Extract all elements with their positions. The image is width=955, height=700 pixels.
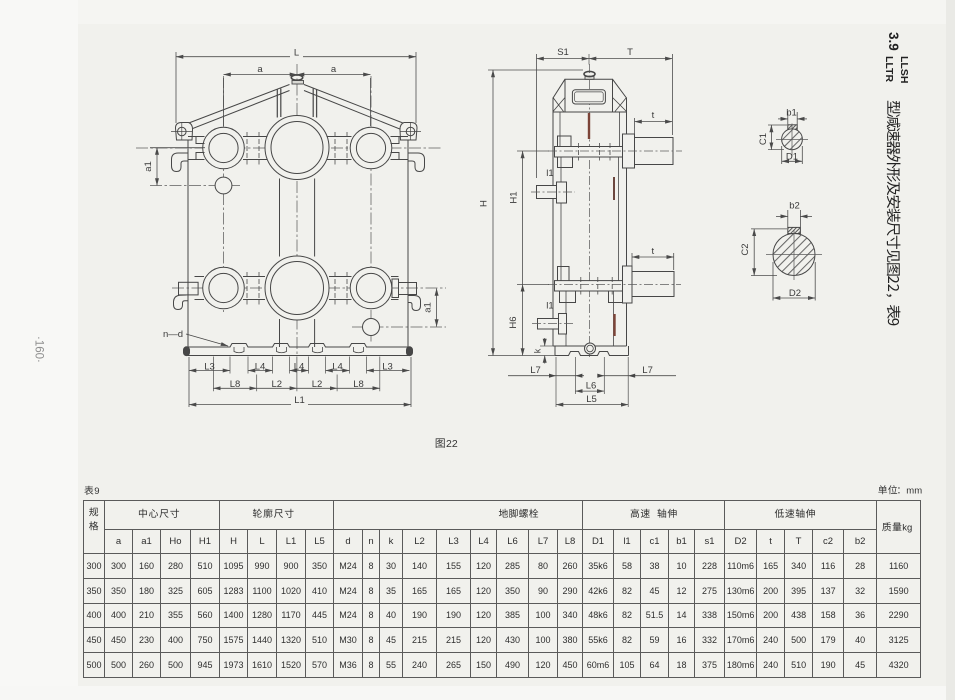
svg-text:3.9: 3.9 [886,32,901,51]
svg-text:L5: L5 [586,394,597,405]
svg-text:t: t [652,110,655,121]
svg-text:H6: H6 [508,316,519,328]
svg-text:L2: L2 [272,379,283,390]
svg-text:l1: l1 [546,168,553,179]
svg-text:T: T [627,47,633,58]
svg-text:mm: mm [906,486,922,497]
svg-text:a: a [331,64,337,75]
svg-text:S1: S1 [557,47,569,58]
svg-text:22: 22 [446,438,458,450]
svg-text:L7: L7 [530,365,541,376]
svg-text:k: k [533,348,543,353]
svg-text:l1: l1 [546,301,553,312]
svg-text:L1: L1 [294,395,305,406]
svg-text:L4: L4 [294,362,305,373]
svg-text:L: L [294,47,299,58]
svg-text:a1: a1 [423,302,434,313]
svg-text:L8: L8 [230,379,241,390]
svg-text:H: H [479,200,490,207]
svg-text:a1: a1 [143,161,154,172]
svg-text:L7: L7 [642,365,653,376]
svg-text:D1: D1 [786,151,798,162]
svg-text:b1: b1 [786,108,797,119]
svg-text:L4: L4 [332,362,343,373]
svg-text:H1: H1 [509,191,520,203]
svg-text:b2: b2 [789,200,800,211]
svg-text:C1: C1 [758,133,769,145]
svg-text:n—d: n—d [163,329,183,340]
svg-text:LLTR: LLTR [883,56,895,82]
svg-text:9: 9 [94,486,99,497]
svg-text:D2: D2 [789,288,801,299]
svg-text:L4: L4 [255,362,266,373]
svg-text:L2: L2 [312,379,323,390]
svg-text:LLSH: LLSH [898,56,910,83]
svg-text:a: a [257,64,263,75]
svg-text:L3: L3 [382,362,393,373]
svg-text:t: t [651,246,654,257]
svg-text:·160·: ·160· [33,336,45,363]
svg-text:L3: L3 [204,362,215,373]
svg-text:L8: L8 [353,379,364,390]
svg-text:L6: L6 [586,380,597,391]
svg-text:C2: C2 [740,243,751,255]
